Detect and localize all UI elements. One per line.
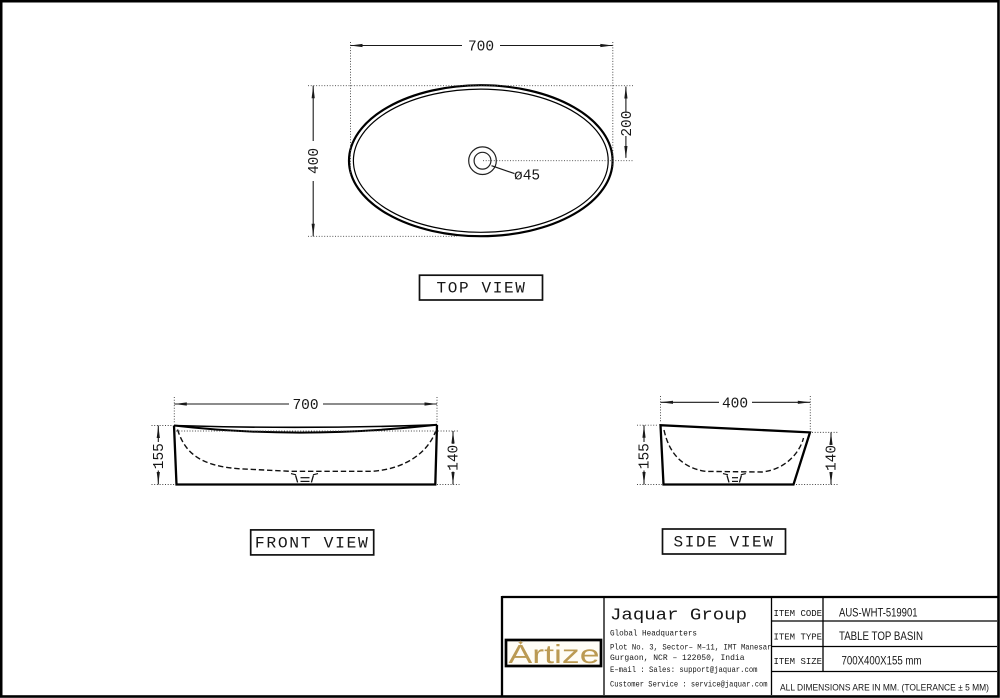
svg-text:700: 700 [292,398,318,414]
svg-text:Global Headquarters: Global Headquarters [610,629,697,639]
svg-text:Gurgaon, NCR – 122050, India: Gurgaon, NCR – 122050, India [610,653,745,663]
svg-text:140: 140 [447,445,463,471]
svg-text:AUS-WHT-519901: AUS-WHT-519901 [839,608,918,620]
svg-text:ITEM CODE: ITEM CODE [774,608,823,619]
svg-text:ITEM SIZE: ITEM SIZE [774,656,823,667]
svg-text:700: 700 [468,40,494,56]
svg-text:700X400X155 mm: 700X400X155 mm [842,655,922,667]
svg-text:ALL DIMENSIONS ARE IN MM. (TOL: ALL DIMENSIONS ARE IN MM. (TOLERANCE ± 5… [780,682,989,693]
svg-text:200: 200 [620,111,636,137]
svg-text:E–mail : Sales: support@jaquar: E–mail : Sales: support@jaquar.com [610,665,758,675]
svg-text:155: 155 [638,443,654,469]
svg-text:FRONT VIEW: FRONT VIEW [255,535,370,553]
svg-text:140: 140 [825,445,841,471]
svg-text:Plot No. 3, Sector– M–11, IMT: Plot No. 3, Sector– M–11, IMT Manesar [610,642,772,652]
svg-text:TABLE TOP BASIN: TABLE TOP BASIN [839,631,923,643]
svg-text:Jaquar Group: Jaquar Group [610,606,747,625]
svg-text:✦: ✦ [518,639,525,648]
svg-text:400: 400 [307,148,323,174]
svg-text:TOP VIEW: TOP VIEW [437,280,527,298]
svg-text:ø45: ø45 [514,169,540,185]
svg-text:400: 400 [722,396,748,412]
svg-text:SIDE VIEW: SIDE VIEW [674,534,775,552]
svg-text:Customer Service : service@jaq: Customer Service : service@jaquar.com [610,679,768,689]
svg-text:155: 155 [152,443,168,469]
svg-text:ITEM TYPE: ITEM TYPE [774,632,823,643]
